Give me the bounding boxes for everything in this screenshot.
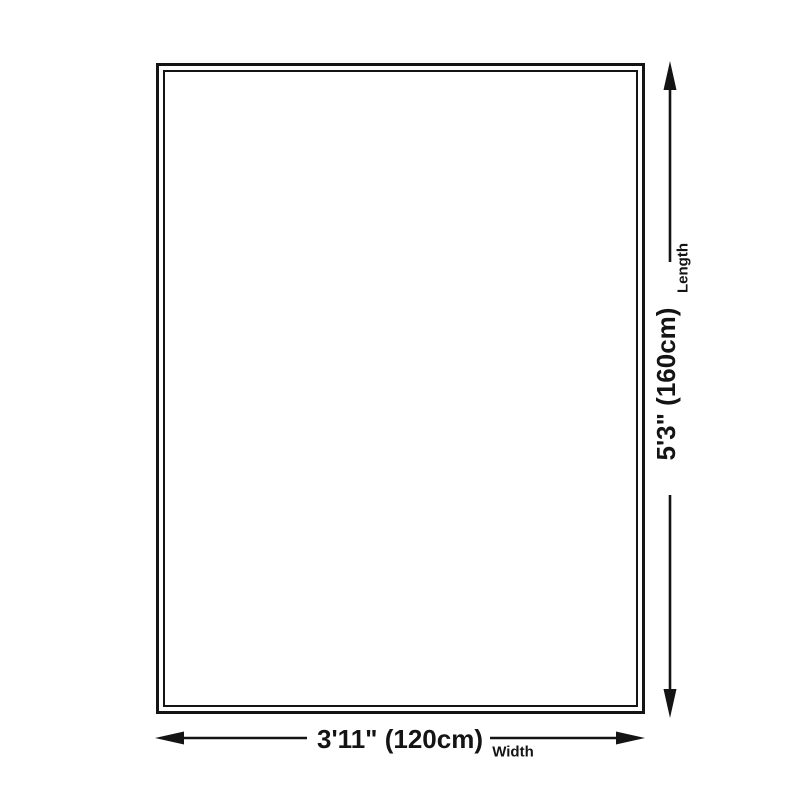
rug-size-diagram: 5'3" (160cm) Length 3'11" (120cm) Width <box>0 0 800 800</box>
length-dimension-label: Length <box>676 243 691 293</box>
length-dimension-value: 5'3" (160cm) <box>653 308 679 461</box>
width-dimension-label: Width <box>492 745 534 760</box>
arrow-left-icon <box>155 732 184 745</box>
arrow-down-icon <box>664 689 677 718</box>
width-dimension-value: 3'11" (120cm) <box>317 726 483 752</box>
rug-outline <box>156 63 645 714</box>
arrow-right-icon <box>616 732 645 745</box>
arrow-up-icon <box>664 61 677 90</box>
rug-inner-outline <box>163 70 638 707</box>
